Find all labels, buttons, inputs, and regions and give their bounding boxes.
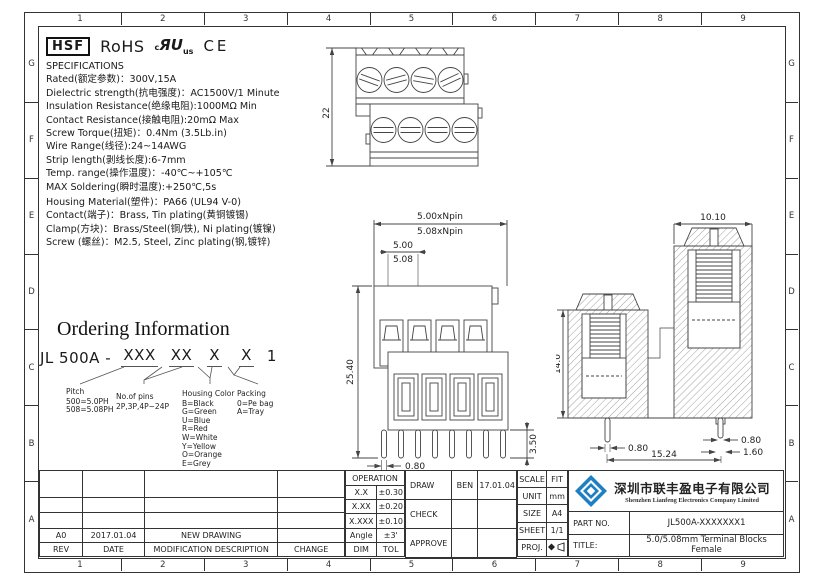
code-group-pitch: XXX <box>121 346 157 367</box>
zone-label: D <box>25 255 38 331</box>
dim-label: 5.00xNpin <box>417 212 463 222</box>
spec-line: Wire Range(线径):24~14AWG <box>46 140 280 153</box>
spec-line: MAX Soldering(瞬时温度):+250℃,5s <box>46 181 280 194</box>
zone-label: 7 <box>536 12 619 25</box>
zone-label: A <box>25 482 38 557</box>
spec-line: Contact Resistance(接触电阻):20mΩ Max <box>46 114 280 127</box>
tol-label: X.X <box>346 486 377 500</box>
zone-label: C <box>25 330 38 406</box>
dim-label: 10.10 <box>700 213 726 223</box>
legend-line: A=Tray <box>237 408 273 417</box>
zone-label: 5 <box>371 12 454 25</box>
dim-label: 0.80 <box>405 462 425 470</box>
material-line: Housing Material(塑件)：PA66 (UL94 V-0) <box>46 196 276 209</box>
tol-label: DIM <box>346 542 377 556</box>
tol-value: ±0.10 <box>377 514 405 528</box>
zone-label: 1 <box>39 12 122 25</box>
rev-header: CHANGE <box>278 542 345 556</box>
certification-marks: HSF RoHS cЯUus CE <box>46 36 229 56</box>
legend-line: 2P,3P,4P~24P <box>116 403 169 412</box>
projection-symbol-icon <box>547 539 568 556</box>
zone-label: 9 <box>702 558 784 571</box>
zone-ruler-bottom: 1 2 3 4 5 6 7 8 9 <box>39 558 784 571</box>
materials-block: Housing Material(塑件)：PA66 (UL94 V-0) Con… <box>46 196 276 250</box>
rev-date: 2017.01.04 <box>83 528 145 542</box>
zone-label: B <box>25 406 38 482</box>
rev-change <box>278 528 345 542</box>
company-logo <box>574 474 608 508</box>
dim-label: 22 <box>322 107 332 118</box>
approval-date <box>478 529 517 558</box>
front-view-drawing: 5.00xNpin 5.08xNpin 5.00 5.08 25.40 3.50… <box>322 208 550 470</box>
info-label: SHEET <box>518 522 547 539</box>
info-value: A4 <box>547 505 568 522</box>
spec-line: Screw Torque(扭矩)：0.4Nm (3.5Lb.in) <box>46 127 280 140</box>
zone-label: 6 <box>453 558 536 571</box>
legend-line: E=Grey <box>182 460 234 469</box>
zone-label: 8 <box>619 12 702 25</box>
info-table: SCALEFIT UNITmm SIZEA4 SHEET1/1 PROJ. <box>517 470 568 557</box>
spec-line: Dielectric strength(抗电强度)：AC1500V/1 Minu… <box>46 87 280 100</box>
legend-pins: No.of pins 2P,3P,4P~24P <box>116 393 169 411</box>
datasheet-page: 1 2 3 4 5 6 7 8 9 1 2 3 4 5 6 7 8 9 G F … <box>0 0 826 585</box>
dim-label: 15.24 <box>651 450 677 460</box>
title-block: A0 2017.01.04 NEW DRAWING REV DATE MODIF… <box>39 470 784 557</box>
info-label: UNIT <box>518 488 547 505</box>
tol-label: X.XXX <box>346 514 377 528</box>
legend-packing: Packing 0=Pe bag A=Tray <box>237 390 273 417</box>
zone-label: 7 <box>536 558 619 571</box>
legend-title: Housing Color <box>182 390 234 399</box>
part-no-label: PART NO. <box>569 512 630 534</box>
info-label: SIZE <box>518 505 547 522</box>
zone-label: F <box>25 103 38 179</box>
title-value: 5.0/5.08mm Terminal Blocks Female <box>630 534 784 556</box>
tol-label: X.XX <box>346 500 377 514</box>
code-group-color: X <box>207 346 222 367</box>
approval-date <box>478 500 517 529</box>
zone-label: 1 <box>39 558 122 571</box>
info-label: PROJ. <box>518 539 547 556</box>
legend-title: Packing <box>237 390 273 399</box>
info-value: mm <box>547 488 568 505</box>
dim-label: 3.50 <box>529 434 539 454</box>
legend-pitch: Pitch 500=5.0PH 508=5.08PH <box>66 388 113 415</box>
info-value: 1/1 <box>547 522 568 539</box>
zone-label: 3 <box>205 12 288 25</box>
rev-header: MODIFICATION DESCRIPTION <box>145 542 278 556</box>
zone-label: G <box>25 27 38 103</box>
dim-label: 5.08xNpin <box>417 227 463 237</box>
dim-label: 14.0 <box>556 354 563 374</box>
tolerance-table: OPERATION X.X±0.30 X.XX±0.20 X.XXX±0.10 … <box>345 470 405 557</box>
tolerance-header: OPERATION <box>346 471 405 486</box>
zone-label: G <box>785 27 798 103</box>
company-block: 深圳市联丰盈电子有限公司 Shenzhen Lianfeng Electroni… <box>568 470 784 557</box>
code-group-pins: XX <box>169 346 195 367</box>
zone-label: 5 <box>371 558 454 571</box>
ordering-code: JL 500A - XXX XX X X 1 <box>40 346 277 367</box>
material-line: Contact(端子)：Brass, Tin plating(黄铜镀锡) <box>46 209 276 222</box>
dim-label: 25.40 <box>346 359 356 385</box>
specifications-title: SPECIFICATIONS <box>46 60 280 73</box>
rev-value: A0 <box>40 528 83 542</box>
tol-value: ±0.30 <box>377 486 405 500</box>
dim-label: 5.00 <box>393 241 413 251</box>
zone-label: 9 <box>702 12 784 25</box>
approval-label: CHECK <box>406 500 452 529</box>
approval-date: 17.01.04 <box>478 471 517 500</box>
top-view-drawing: 22 <box>318 38 483 173</box>
zone-label: A <box>785 482 798 557</box>
spec-line: Strip length(剥线长度):6-7mm <box>46 154 280 167</box>
tol-label: Angle <box>346 528 377 542</box>
company-name-en: Shenzhen Lianfeng Electronics Company Li… <box>614 497 770 504</box>
approval-name <box>452 529 478 558</box>
legend-line: 508=5.08PH <box>66 406 113 415</box>
zone-label: 8 <box>619 558 702 571</box>
zone-label: 2 <box>122 558 205 571</box>
rev-header: DATE <box>83 542 145 556</box>
part-no-value: JL500A-XXXXXXX1 <box>630 512 784 534</box>
zone-label: 2 <box>122 12 205 25</box>
spec-line: Temp. range(操作温度)：-40℃~+105℃ <box>46 167 280 180</box>
approval-name <box>452 500 478 529</box>
company-name-cn: 深圳市联丰盈电子有限公司 <box>614 478 770 497</box>
approval-label: APPROVE <box>406 529 452 558</box>
zone-label: E <box>25 179 38 255</box>
dim-label: 0.80 <box>741 436 761 446</box>
zone-label: 3 <box>205 558 288 571</box>
dim-label: 1.60 <box>743 448 763 458</box>
tol-value: ±3' <box>377 528 405 542</box>
code-prefix: JL 500A - <box>40 349 116 367</box>
zone-label: 4 <box>288 12 371 25</box>
legend-title: No.of pins <box>116 393 169 402</box>
dim-label: 5.08 <box>393 255 413 265</box>
code-group-packing: X <box>239 346 254 367</box>
zone-ruler-top: 1 2 3 4 5 6 7 8 9 <box>39 12 784 25</box>
info-value: FIT <box>547 471 568 488</box>
approval-name: BEN <box>452 471 478 500</box>
tol-value: TOL <box>377 542 405 556</box>
side-view-drawing: 10.10 14.0 0.80 0.80 1.60 15.24 <box>556 208 794 466</box>
code-suffix: 1 <box>267 347 277 367</box>
spec-line: Rated(额定参数)：300V,15A <box>46 73 280 86</box>
spec-line: Insulation Resistance(绝缘电阻):1000MΩ Min <box>46 100 280 113</box>
rohs-mark: RoHS <box>100 37 144 56</box>
dim-label: 0.80 <box>628 444 648 454</box>
ce-mark: CE <box>203 37 229 55</box>
zone-label: 6 <box>453 12 536 25</box>
specifications-block: SPECIFICATIONS Rated(额定参数)：300V,15A Diel… <box>46 60 280 194</box>
info-label: SCALE <box>518 471 547 488</box>
material-line: Screw (螺丝)：M2.5, Steel, Zinc plating(钢,镀… <box>46 236 276 249</box>
ordering-title: Ordering Information <box>57 318 230 341</box>
rev-header: REV <box>40 542 83 556</box>
ul-recognized-icon: cЯUus <box>155 36 194 56</box>
tol-value: ±0.20 <box>377 500 405 514</box>
approval-label: DRAW <box>406 471 452 500</box>
rev-desc: NEW DRAWING <box>145 528 278 542</box>
zone-label: F <box>785 103 798 179</box>
revision-table: A0 2017.01.04 NEW DRAWING REV DATE MODIF… <box>39 470 345 557</box>
legend-title: Pitch <box>66 388 113 397</box>
material-line: Clamp(方块)：Brass/Steel(铜/铁), Ni plating(镀… <box>46 223 276 236</box>
approval-table: DRAW BEN 17.01.04 CHECK APPROVE <box>405 470 517 558</box>
zone-label: 4 <box>288 558 371 571</box>
legend-housing-color: Housing Color B=Black G=Green U=Blue R=R… <box>182 390 234 468</box>
hsf-logo: HSF <box>46 37 90 56</box>
zone-ruler-left: G F E D C B A <box>25 27 38 557</box>
title-label: TITLE: <box>569 534 630 556</box>
